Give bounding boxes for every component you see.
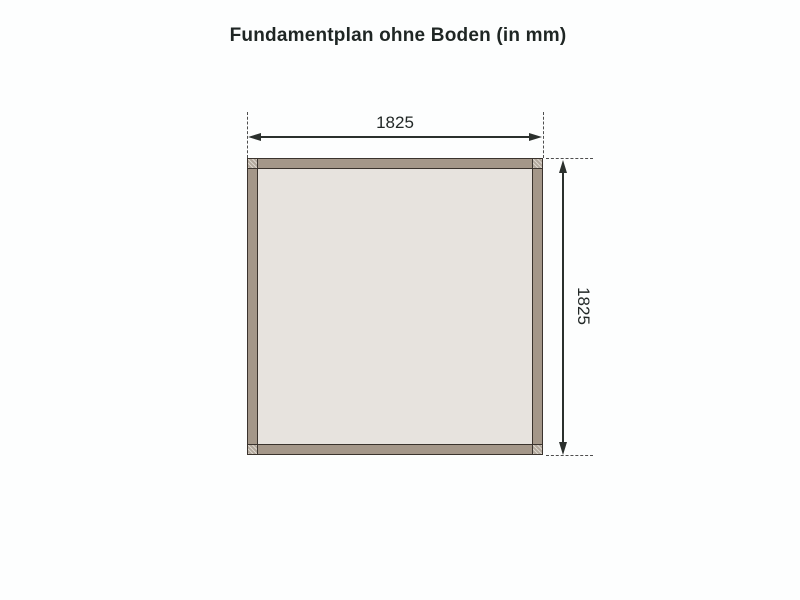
foundation-plan-square	[247, 158, 543, 455]
frame-board-left	[247, 168, 258, 445]
width-dimension-line	[252, 136, 538, 138]
page-title: Fundamentplan ohne Boden (in mm)	[230, 25, 567, 47]
width-dimension-label: 1825	[376, 113, 414, 133]
height-dimension-line	[562, 168, 564, 448]
arrowhead-up-icon	[559, 160, 567, 173]
foundation-plan-canvas: Fundamentplan ohne Boden (in mm) 1825 18…	[0, 0, 800, 600]
corner-joint-top-left	[247, 158, 258, 169]
corner-joint-bottom-left	[247, 444, 258, 455]
extension-line-bottom	[546, 455, 593, 456]
extension-line-top	[546, 158, 593, 159]
height-dimension-label: 1825	[573, 287, 593, 325]
frame-board-right	[532, 168, 543, 445]
arrowhead-right-icon	[529, 133, 542, 141]
frame-board-bottom	[247, 444, 543, 455]
arrowhead-down-icon	[559, 442, 567, 455]
corner-joint-bottom-right	[532, 444, 543, 455]
extension-line-right	[543, 112, 544, 158]
corner-joint-top-right	[532, 158, 543, 169]
frame-board-top	[247, 158, 543, 169]
arrowhead-left-icon	[248, 133, 261, 141]
plan-interior-area	[257, 168, 533, 445]
